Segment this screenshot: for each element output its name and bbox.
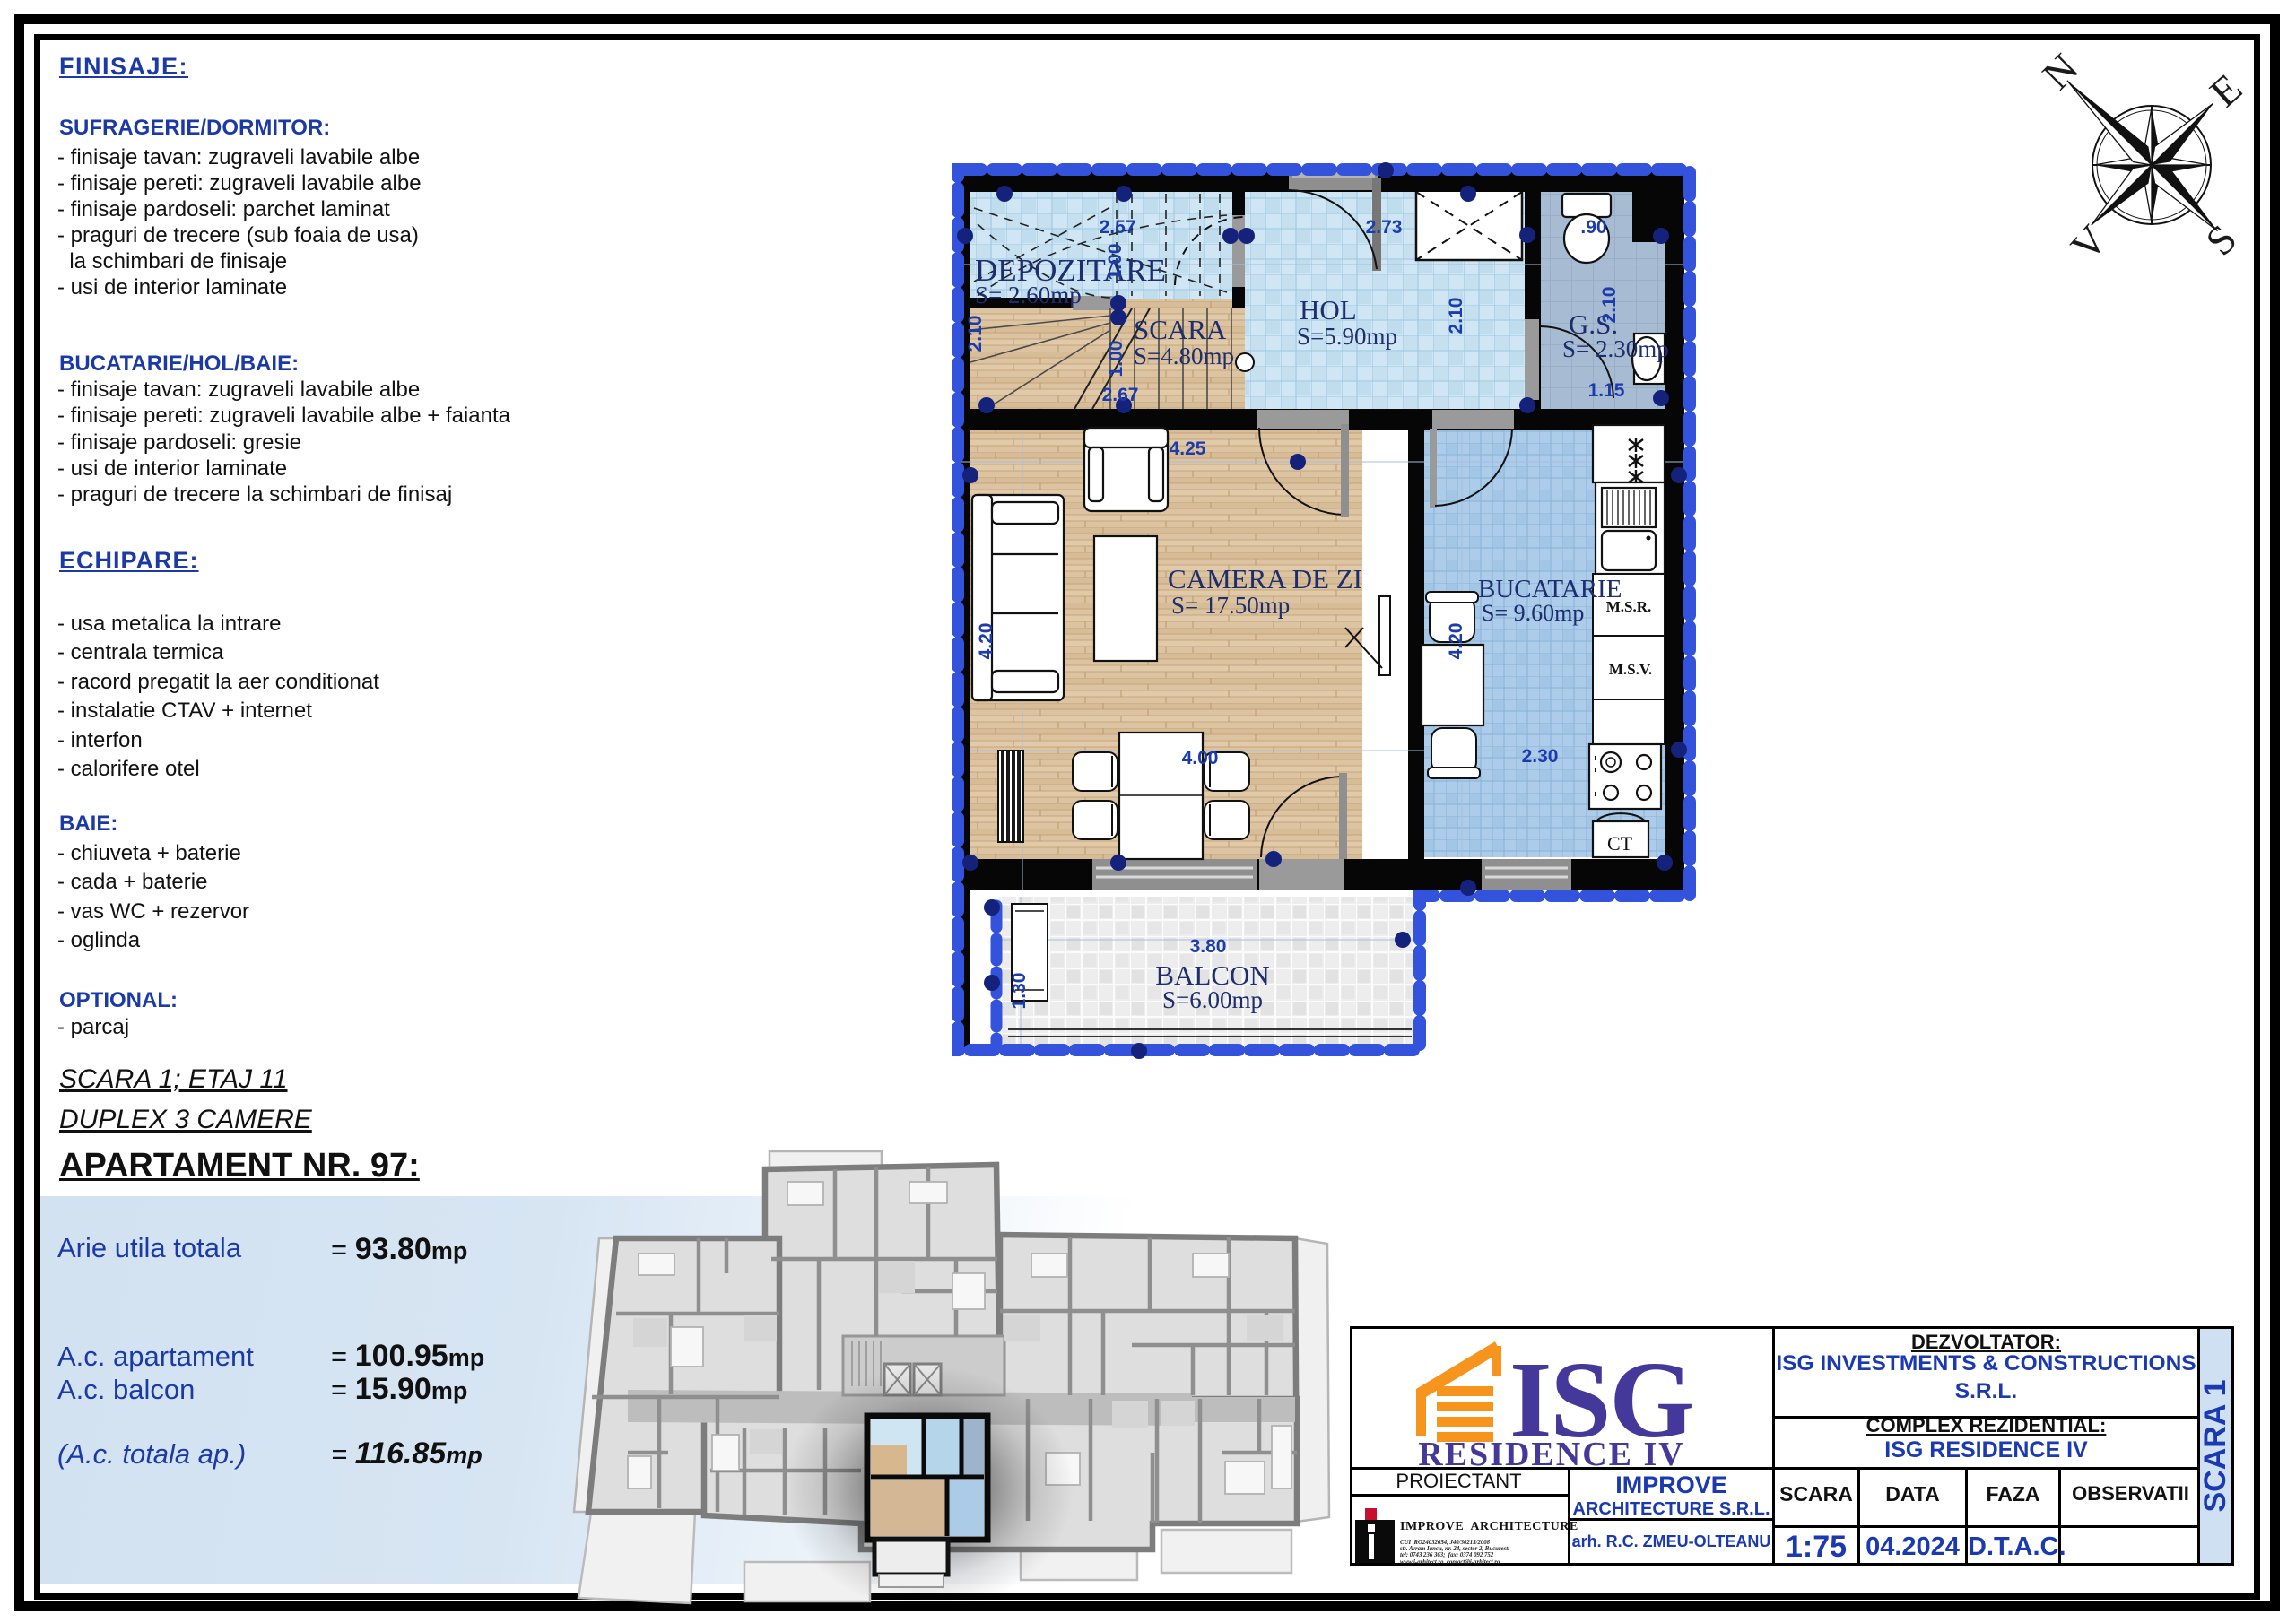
svg-text:S= 2.60mp: S= 2.60mp [975,282,1082,308]
svg-text:2.73: 2.73 [1366,217,1403,238]
svg-text:SCARA: SCARA [1134,314,1227,345]
svg-text:CT: CT [1607,832,1633,855]
svg-text:HOL: HOL [1300,294,1357,325]
svg-text:M.S.V.: M.S.V. [1609,661,1652,678]
svg-text:3.80: 3.80 [1190,936,1227,957]
svg-text:4.25: 4.25 [1170,438,1206,459]
svg-text:4.20: 4.20 [1446,623,1466,660]
svg-text:M.S.R.: M.S.R. [1606,598,1652,615]
svg-text:S=5.90mp: S=5.90mp [1297,323,1397,350]
svg-text:CAMERA DE ZI: CAMERA DE ZI [1168,563,1362,595]
svg-text:4.20: 4.20 [976,623,996,660]
svg-text:2.67: 2.67 [1102,385,1139,405]
svg-text:2.10: 2.10 [1446,298,1466,334]
svg-text:1.00: 1.00 [1106,341,1126,378]
svg-text:S= 9.60mp: S= 9.60mp [1482,600,1584,626]
svg-text:2.30: 2.30 [1522,746,1559,767]
svg-text:2.10: 2.10 [1599,287,1620,324]
svg-text:S: S [2196,215,2245,264]
svg-text:S= 2.30mp: S= 2.30mp [1562,335,1669,362]
svg-text:S=4.80mp: S=4.80mp [1134,343,1234,369]
svg-text:S= 17.50mp: S= 17.50mp [1171,592,1290,619]
svg-text:4.00: 4.00 [1182,748,1219,768]
svg-text:1.15: 1.15 [1588,380,1625,401]
svg-text:S=6.00mp: S=6.00mp [1162,986,1263,1013]
svg-text:.90: .90 [1580,217,1606,238]
svg-text:1.30: 1.30 [1009,973,1030,1010]
svg-text:2.57: 2.57 [1100,217,1136,238]
svg-text:1.00: 1.00 [1105,244,1126,281]
svg-text:V: V [2062,216,2116,269]
svg-text:2.10: 2.10 [965,316,986,352]
